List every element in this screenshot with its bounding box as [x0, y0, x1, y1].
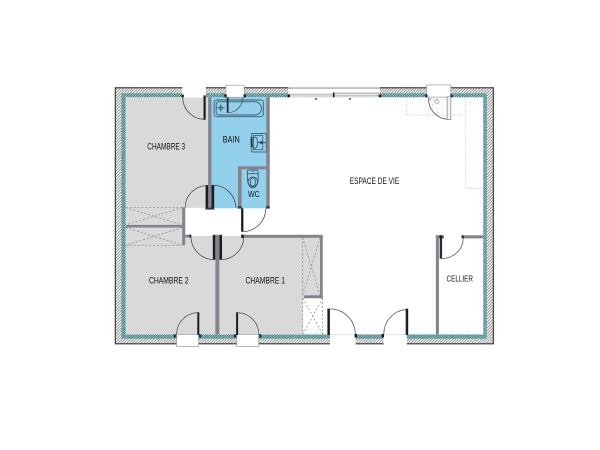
svg-text:ESPACE DE VIE: ESPACE DE VIE: [350, 176, 399, 186]
svg-text:CHAMBRE 3: CHAMBRE 3: [147, 142, 185, 152]
svg-text:CELLIER: CELLIER: [447, 275, 474, 284]
svg-text:CHAMBRE 1: CHAMBRE 1: [246, 275, 286, 285]
svg-text:BAIN: BAIN: [223, 134, 240, 144]
svg-text:WC: WC: [248, 189, 260, 199]
svg-text:CHAMBRE 2: CHAMBRE 2: [149, 275, 189, 285]
